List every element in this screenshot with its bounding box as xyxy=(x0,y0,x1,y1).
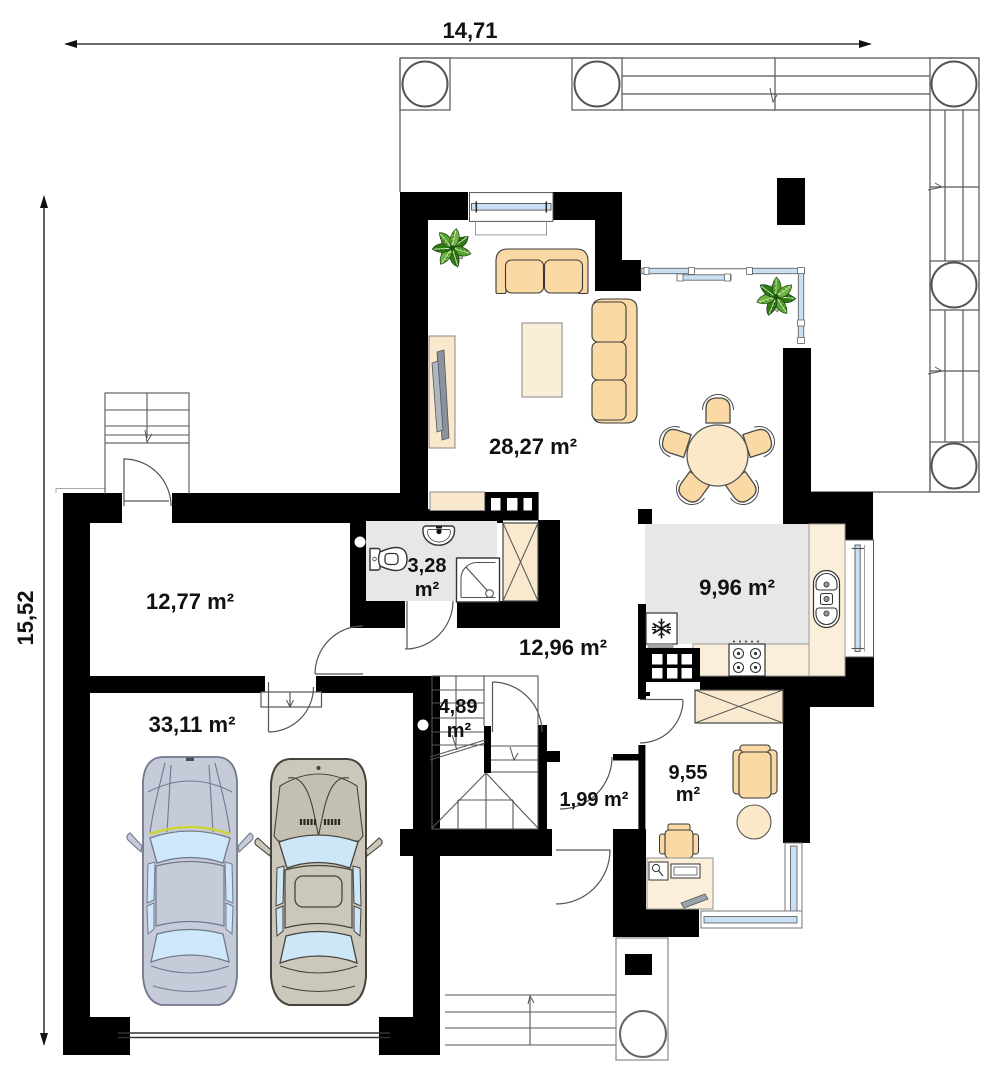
svg-text:3,28: 3,28 xyxy=(408,555,447,577)
svg-text:9,55: 9,55 xyxy=(669,762,708,784)
svg-text:4,89: 4,89 xyxy=(439,696,478,718)
svg-text:12,96 m²: 12,96 m² xyxy=(519,635,607,660)
svg-text:28,27 m²: 28,27 m² xyxy=(489,434,577,459)
svg-text:9,96 m²: 9,96 m² xyxy=(699,575,775,600)
svg-text:33,11 m²: 33,11 m² xyxy=(149,712,236,737)
svg-text:14,71: 14,71 xyxy=(442,18,497,43)
svg-text:12,77 m²: 12,77 m² xyxy=(146,589,234,614)
svg-text:15,52: 15,52 xyxy=(13,590,38,645)
svg-text:m²: m² xyxy=(676,784,701,806)
svg-text:m²: m² xyxy=(415,579,440,601)
svg-text:m²: m² xyxy=(447,720,472,742)
svg-text:1,99 m²: 1,99 m² xyxy=(560,789,629,811)
